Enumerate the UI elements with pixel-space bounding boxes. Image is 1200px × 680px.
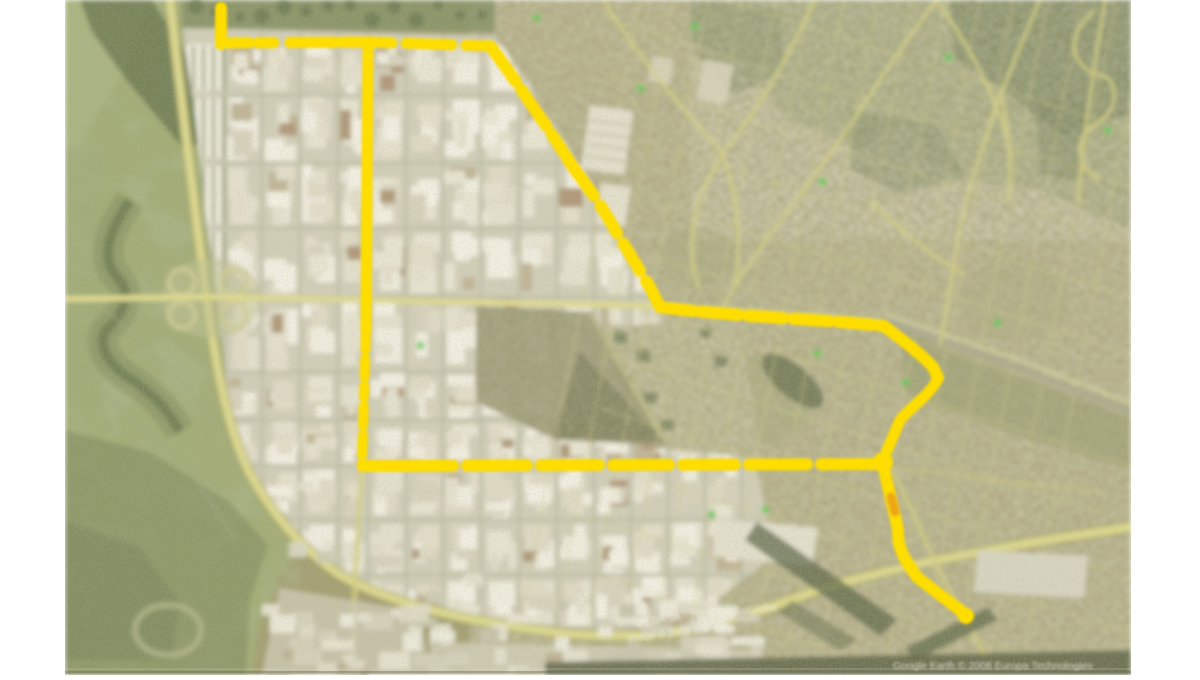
svg-text:Google Earth © 2008 Europa Tec: Google Earth © 2008 Europa Technologies: [893, 660, 1093, 672]
